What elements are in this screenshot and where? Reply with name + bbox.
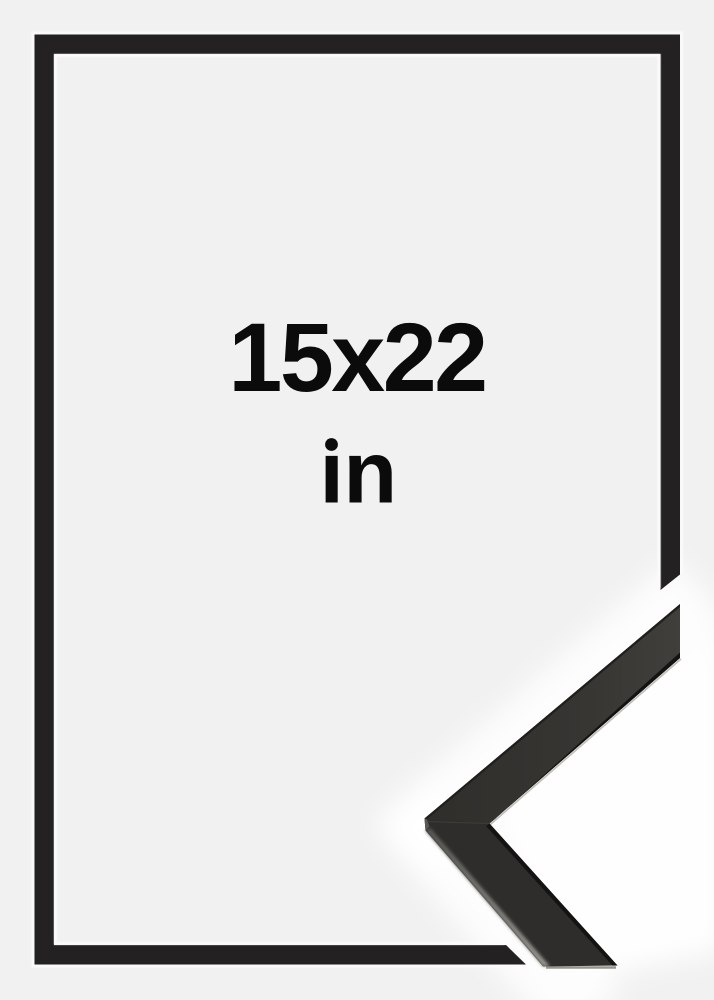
svg-text:ın: ın (319, 423, 396, 522)
svg-text:15x22: 15x22 (228, 303, 485, 412)
